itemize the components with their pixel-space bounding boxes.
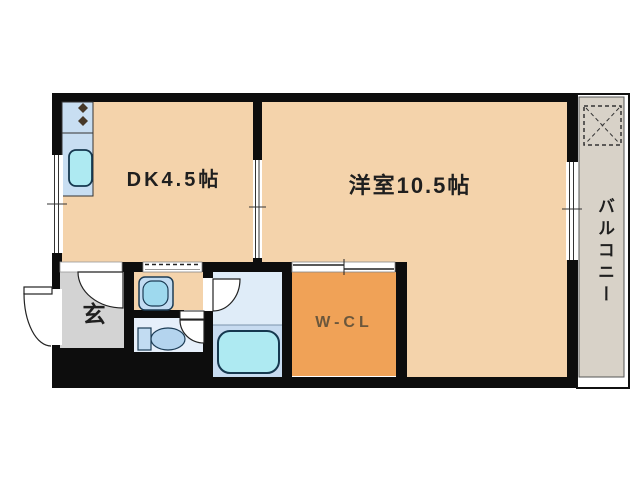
kitchen-counter — [62, 102, 93, 196]
genkan-label: 玄 — [78, 302, 110, 327]
wash-basin — [139, 277, 173, 310]
wall-dk-living-upper — [253, 102, 262, 160]
balcony-label: バルコニー — [589, 177, 613, 327]
wall-bathroom-right — [282, 262, 292, 380]
bathtub — [218, 331, 279, 373]
toilet-seat — [151, 328, 185, 350]
living-floor-lower — [407, 262, 567, 377]
slider-panel — [143, 262, 202, 272]
wcl-label: W-CL — [292, 314, 396, 332]
wall-top — [52, 93, 577, 102]
sliding-door-washroom — [143, 262, 202, 272]
kitchen-sink — [69, 150, 92, 186]
toilet-bowl — [138, 328, 185, 350]
hall-door-opening — [60, 262, 122, 272]
toilet-tank — [138, 328, 151, 350]
wall-mass-below-toilet — [134, 352, 213, 386]
wash-basin-bowl — [143, 281, 168, 306]
living-room-label: 洋室10.5帖 — [330, 174, 490, 198]
entrance-opening — [50, 289, 62, 345]
wall-genkan-right — [124, 272, 134, 352]
entrance-door-leaf — [24, 287, 52, 294]
window-right-glass — [566, 162, 578, 260]
entrance-door-swing — [24, 293, 51, 346]
bathroom-door-opening — [203, 278, 213, 311]
dk-room-label: DK4.5帖 — [104, 169, 244, 191]
toilet-door-leaf — [180, 311, 204, 319]
entrance-door — [24, 287, 62, 346]
wall-washroom-bottom — [134, 310, 184, 318]
floor-plan-drawing — [0, 0, 640, 480]
slider-panel — [253, 160, 262, 258]
wall-mass-below-genkan — [52, 348, 134, 386]
wall-wcl-right — [396, 262, 407, 380]
floor-plan-canvas: DK4.5帖 洋室10.5帖 玄 W-CL バルコニー — [0, 0, 640, 480]
